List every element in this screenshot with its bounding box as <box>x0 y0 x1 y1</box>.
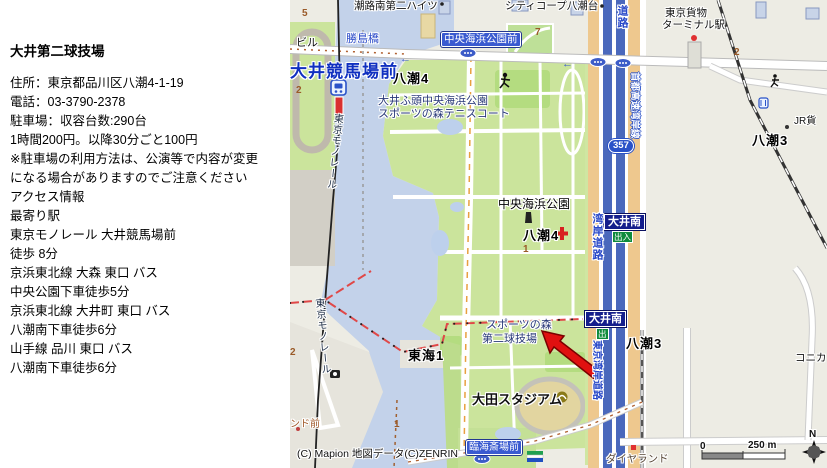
page: 大井第二球技場 住所：東京都品川区八潮4-1-19 電話：03-3790-237… <box>0 0 827 468</box>
facility-label-konica-partial: コニカミ <box>795 350 827 365</box>
facility-label-freight2: ターミナル駅 <box>662 17 725 32</box>
road-label-shuto-expressway: 首都高速湾岸線 <box>629 72 643 139</box>
info-line-note2: になる場合がありますのでご注意ください <box>10 169 258 188</box>
block-number: 1 <box>394 419 400 430</box>
exit-badge-inout: 出入 <box>612 231 633 243</box>
monument-icon <box>525 212 532 223</box>
block-number: 1 <box>523 244 529 255</box>
info-line-address: 住所：東京都品川区八潮4-1-19 <box>10 74 258 93</box>
info-line-bus1b: 中央公園下車徒歩5分 <box>10 283 258 302</box>
rail-bridge-icon <box>759 98 768 108</box>
scale-zero: 0 <box>700 441 706 452</box>
info-line-access: アクセス情報 <box>10 188 258 207</box>
info-line-bus3: 山手線 品川 東口 バス <box>10 340 258 359</box>
terminal-station-dot <box>691 35 697 41</box>
road-label-doro-partial: 道路 <box>614 5 630 29</box>
facility-label-heights-partial: 潮路南第二ハイツ <box>354 0 438 13</box>
road-label-tokyowangan: 東京湾岸道路 <box>591 340 606 400</box>
exit-label-oiminami-a: 大井南 <box>604 214 645 230</box>
info-line-note1: ※駐車場の利用方法は、公演等で内容が変更 <box>10 150 258 169</box>
info-line-fee: 1時間200円。以降30分ごと100円 <box>10 131 258 150</box>
compass-north-label: N <box>809 429 816 440</box>
one-way-arrow-icon: ← <box>562 58 573 70</box>
info-line-bus3b: 八潮南下車徒歩6分 <box>10 359 258 378</box>
facility-label-chuokaihinkoen: 中央海浜公園 <box>498 195 570 212</box>
info-line-bus1: 京浜東北線 大森 東口 バス <box>10 264 258 283</box>
info-line-bus2b: 八潮南下車徒歩6分 <box>10 321 258 340</box>
exit-label-oiminami-b: 大井南 <box>585 311 626 327</box>
facility-label-citycorp-partial: シティコープ八潮台 <box>505 0 598 13</box>
block-number: 2 <box>296 85 302 96</box>
info-line-bus2: 京浜東北線 大井町 東口 バス <box>10 302 258 321</box>
info-line-walk: 徒歩 8分 <box>10 245 258 264</box>
block-number: 2 <box>290 347 296 358</box>
bus-stop-label-chuokaihinkoenmae: 中央海浜公園前 <box>441 32 521 47</box>
info-lines: 住所：東京都品川区八潮4-1-19 電話：03-3790-2378 駐車場：収容… <box>10 74 258 378</box>
block-number: 5 <box>302 8 308 19</box>
bus-stop-label-landmae-partial: ンド前 <box>290 415 320 430</box>
page-title: 大井第二球技場 <box>10 40 105 60</box>
facility-label-diamondland: ダイヤランド <box>606 451 669 466</box>
bus-stop-label-rinkaisaijomae: 臨海斎場前 <box>466 440 522 455</box>
bridge-label-katsushima: 勝島橋 <box>346 30 379 46</box>
heights-dot <box>440 2 444 6</box>
district-label-tokai1: 東海1 <box>408 345 444 364</box>
map-copyright: (C) Mapion 地図データ(C)ZENRIN <box>297 446 458 461</box>
station-label-oikeibajomae: 大井競馬場前 <box>290 57 398 82</box>
jr-dot <box>785 125 789 129</box>
info-line-monorail: 東京モノレール 大井競馬場前 <box>10 226 258 245</box>
one-way-arrow-icon: ← <box>400 53 411 65</box>
station-icon <box>331 80 346 95</box>
venue-label-line2: 第二球技場 <box>482 330 537 346</box>
district-label-yashio4-a: 八潮4 <box>393 68 429 87</box>
park-name-line2: スポーツの森テニスコート <box>378 105 510 121</box>
facility-label-otastadium: 大田スタジアム <box>472 389 562 408</box>
district-label-yashio3-a: 八潮3 <box>626 333 662 352</box>
monorail-platform <box>335 97 343 114</box>
road-label-wangandoro: 湾岸道路 <box>589 213 605 261</box>
scale-distance: 250 m <box>748 440 776 451</box>
saijo-flag-icon <box>527 451 543 462</box>
block-number: 7 <box>535 27 541 38</box>
info-line-phone: 電話：03-3790-2378 <box>10 93 258 112</box>
block-number: 2 <box>734 47 740 58</box>
facility-label-building-partial: ビル <box>296 34 318 50</box>
district-label-yashio4-b: 八潮4 <box>523 225 559 244</box>
district-label-yashio3-b: 八潮3 <box>752 130 788 149</box>
info-line-parking: 駐車場：収容台数:290台 <box>10 112 258 131</box>
exit-badge-out: 出 <box>596 328 609 340</box>
route-shield-357: 357 <box>608 139 634 153</box>
facility-label-jr-partial: JR貨 <box>794 112 816 127</box>
info-line-station: 最寄り駅 <box>10 207 258 226</box>
diamond-land-dot <box>631 445 636 450</box>
citycorp-dot <box>600 4 604 8</box>
map[interactable]: 大井競馬場前 勝島橋 中央海浜公園前 臨海斎場前 ンド前 八潮4 八潮4 八潮3… <box>290 0 827 468</box>
